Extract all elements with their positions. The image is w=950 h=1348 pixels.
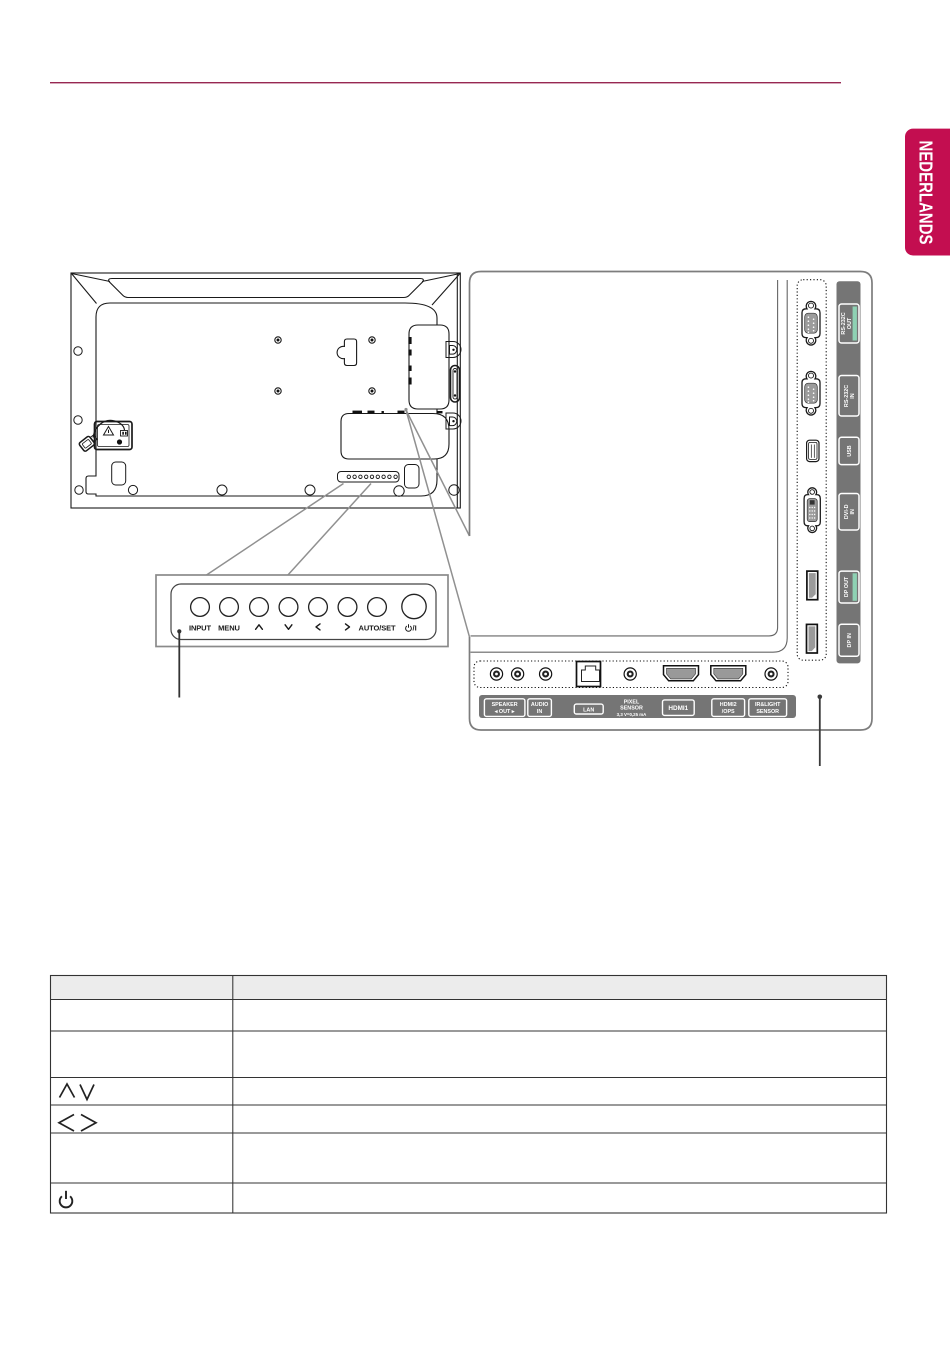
svg-text:NEDERLANDS: NEDERLANDS <box>916 141 936 245</box>
svg-text:SENSOR: SENSOR <box>756 709 779 715</box>
svg-text:/OPS: /OPS <box>722 709 735 715</box>
svg-text:SPEAKER: SPEAKER <box>492 702 518 708</box>
svg-text:IR&LIGHT: IR&LIGHT <box>755 702 781 708</box>
svg-text:DP OUT: DP OUT <box>844 576 850 597</box>
svg-text:DP IN: DP IN <box>847 633 853 647</box>
svg-text:AUDIO: AUDIO <box>531 702 548 708</box>
svg-text:3,3 V=0,25 mA: 3,3 V=0,25 mA <box>617 712 647 717</box>
svg-text:SENSOR: SENSOR <box>620 706 643 712</box>
svg-text:MENU: MENU <box>218 624 240 633</box>
svg-text:◂ OUT ▸: ◂ OUT ▸ <box>494 709 515 715</box>
svg-text:LAN: LAN <box>583 707 594 713</box>
svg-text:/I: /I <box>413 624 417 633</box>
svg-text:AUTO/SET: AUTO/SET <box>359 624 397 633</box>
svg-text:INPUT: INPUT <box>189 624 212 633</box>
svg-text:HDMI2: HDMI2 <box>720 702 737 708</box>
svg-text:USB: USB <box>847 445 853 456</box>
svg-text:IN: IN <box>537 709 542 715</box>
svg-text:HDMI1: HDMI1 <box>668 705 688 712</box>
